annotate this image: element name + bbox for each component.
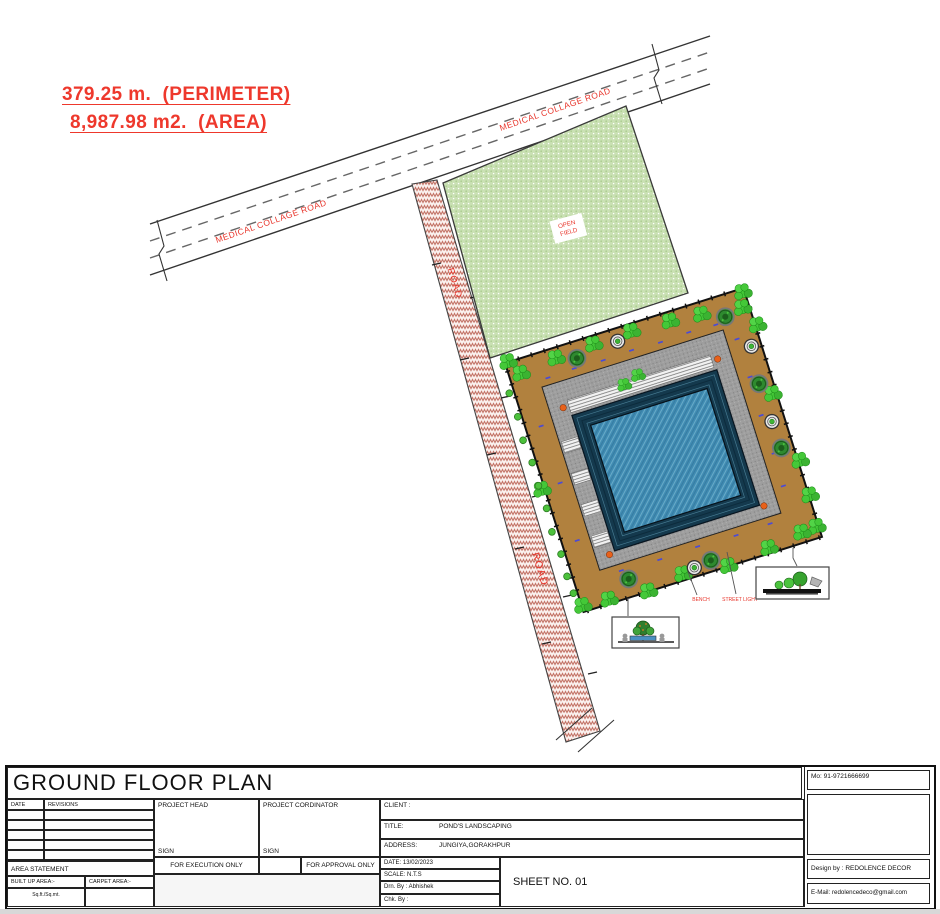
- carpet-area-label: CARPET AREA:-: [85, 876, 154, 888]
- title-row: TITLE: POND'S LANDSCAPING: [380, 820, 804, 839]
- revision-row: [7, 810, 44, 820]
- revision-row: [7, 840, 44, 850]
- revision-row: [7, 830, 44, 840]
- site-plan: MEDICAL COLLAGE ROAD MEDICAL COLLAGE ROA…: [0, 0, 940, 764]
- bench-label: BENCH: [692, 597, 710, 603]
- address-value: JUNGIYA,GORAKHPUR: [439, 842, 510, 849]
- built-up-area-label: BUILT UP AREA:-: [7, 876, 85, 888]
- drawn-by: Drn. By : Abhishek: [380, 881, 500, 894]
- revision-row: [7, 820, 44, 830]
- sq-units-label: Sq.ft./Sq.mt.: [7, 888, 85, 907]
- mobile-number: Mo: 91-9721666699: [807, 770, 930, 790]
- for-approval-label: FOR APPROVAL ONLY: [301, 857, 380, 874]
- project-cordinator-label: PROJECT CORDINATOR: [263, 802, 338, 809]
- empty-cell: [259, 857, 301, 874]
- design-by: Design by : REDOLENCE DECOR: [807, 859, 930, 879]
- drawing-page: 379.25 m. (PERIMETER) 8,987.98 m2. (AREA…: [0, 0, 940, 914]
- title-label: TITLE:: [384, 823, 404, 830]
- revision-row: [44, 830, 154, 840]
- revisions-header: REVISIONS: [44, 799, 154, 810]
- area-statement-label: AREA STATEMENT: [7, 860, 154, 876]
- revision-row: [44, 850, 154, 860]
- empty-cell: [154, 874, 380, 907]
- title-block: GROUND FLOOR PLAN DATE REVISIONS AREA ST…: [5, 765, 936, 910]
- address-label: ADDRESS:: [384, 842, 417, 849]
- shrub-icon: [563, 572, 572, 581]
- sign-label: SIGN: [263, 848, 279, 855]
- medical-road-label-1: MEDICAL COLLAGE ROAD: [214, 197, 328, 245]
- revision-row: [44, 820, 154, 830]
- revision-row: [7, 850, 44, 860]
- project-head-label: PROJECT HEAD: [158, 802, 208, 809]
- logo-box: [807, 794, 930, 855]
- client-label: CLIENT :: [380, 799, 804, 820]
- date-header: DATE: [7, 799, 44, 810]
- email: E-Mail: redolencedeco@gmail.com: [807, 883, 930, 904]
- date-value: DATE: 13/02/2023: [380, 857, 500, 869]
- revision-row: [44, 840, 154, 850]
- page-edge: [0, 909, 940, 914]
- revision-row: [44, 810, 154, 820]
- checked-by: Chk. By :: [380, 894, 500, 907]
- address-row: ADDRESS: JUNGIYA,GORAKHPUR: [380, 839, 804, 857]
- scale-value: SCALE: N.T.S: [380, 869, 500, 881]
- sign-label: SIGN: [158, 848, 174, 855]
- street-light-label: STREET LIGHT: [722, 597, 758, 603]
- carpet-area-value: [85, 888, 154, 907]
- project-head-cell: PROJECT HEAD SIGN: [154, 799, 259, 857]
- drawing-title: GROUND FLOOR PLAN: [7, 767, 802, 799]
- sheet-number: SHEET NO. 01: [500, 857, 804, 907]
- shrub-icon: [519, 436, 528, 445]
- project-cordinator-cell: PROJECT CORDINATOR SIGN: [259, 799, 380, 857]
- shrub-icon: [548, 528, 557, 537]
- for-execution-label: FOR EXECUTION ONLY: [154, 857, 259, 874]
- title-value: POND'S LANDSCAPING: [439, 823, 512, 830]
